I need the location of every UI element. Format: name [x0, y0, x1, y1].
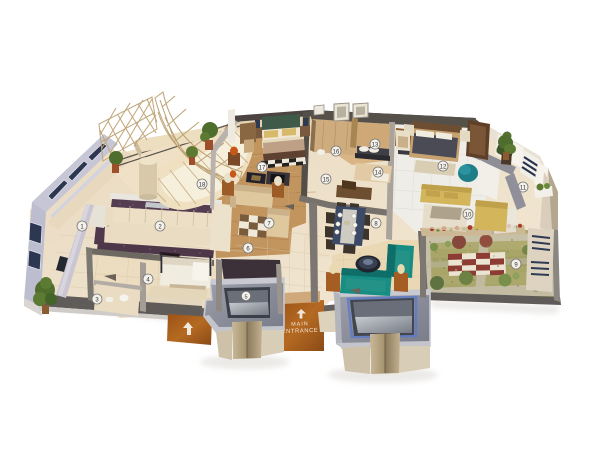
svg-text:ENTRANCE: ENTRANCE — [282, 328, 319, 335]
svg-text:5: 5 — [244, 294, 247, 300]
svg-text:18: 18 — [199, 183, 206, 189]
svg-text:MAIN: MAIN — [291, 321, 309, 328]
svg-text:16: 16 — [333, 150, 340, 156]
svg-text:10: 10 — [465, 213, 472, 219]
svg-text:15: 15 — [323, 178, 330, 184]
svg-text:14: 14 — [375, 171, 382, 177]
svg-text:17: 17 — [259, 166, 266, 172]
svg-text:13: 13 — [372, 143, 379, 149]
svg-text:11: 11 — [520, 186, 527, 192]
svg-text:12: 12 — [440, 165, 447, 171]
